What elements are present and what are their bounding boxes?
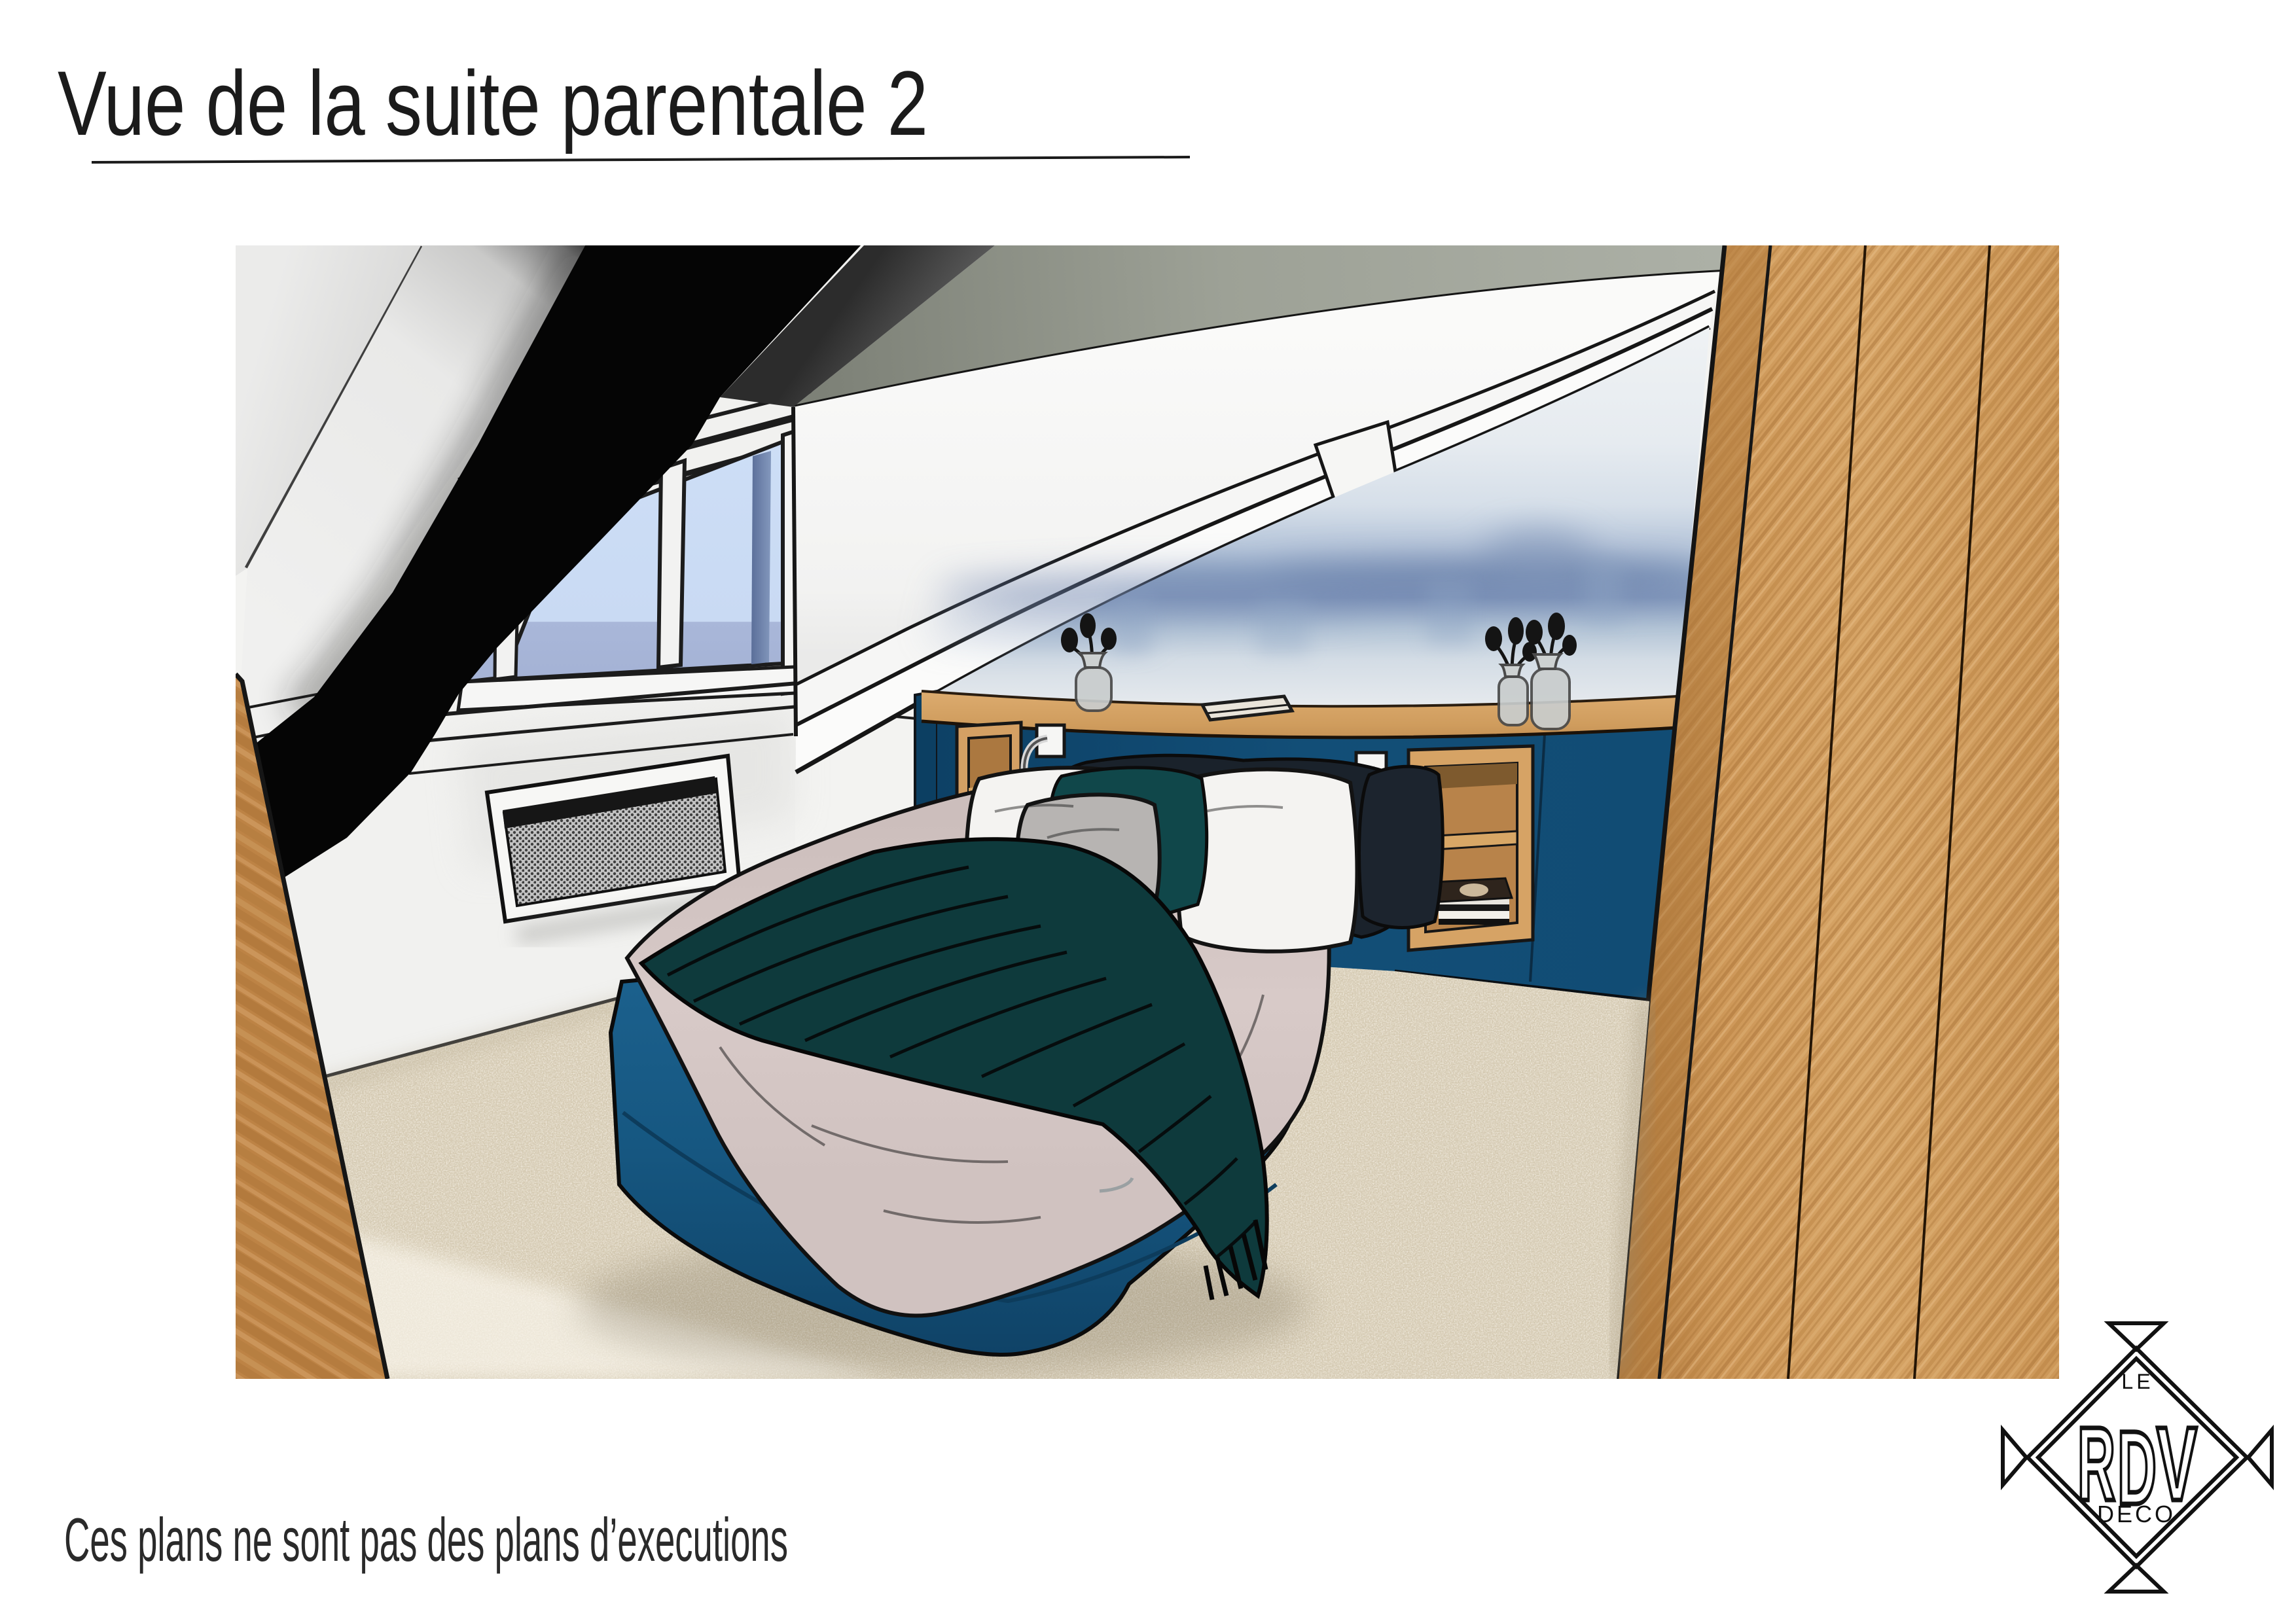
svg-text:DECO: DECO: [2097, 1501, 2176, 1527]
svg-text:Vue de la suite parentale 2: Vue de la suite parentale 2: [58, 52, 928, 154]
svg-text:Ces plans ne sont pas des plan: Ces plans ne sont pas des plans d’execut…: [64, 1505, 788, 1574]
svg-text:LE: LE: [2121, 1370, 2153, 1393]
